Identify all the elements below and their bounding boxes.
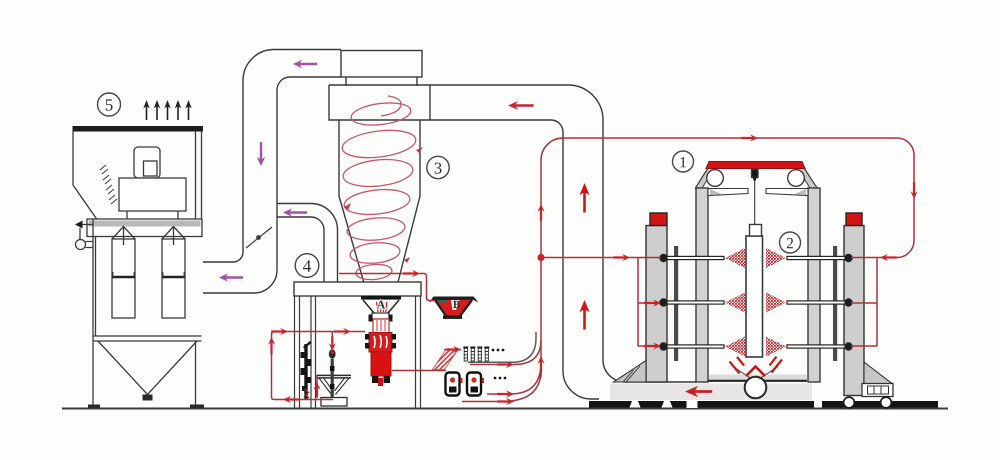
svg-text:3: 3	[434, 158, 442, 177]
svg-text:A: A	[377, 297, 386, 311]
svg-text:5: 5	[105, 95, 114, 114]
svg-text:B: B	[453, 299, 461, 311]
svg-text:2: 2	[786, 235, 794, 252]
svg-text:1: 1	[679, 154, 687, 171]
svg-text:4: 4	[303, 256, 312, 276]
